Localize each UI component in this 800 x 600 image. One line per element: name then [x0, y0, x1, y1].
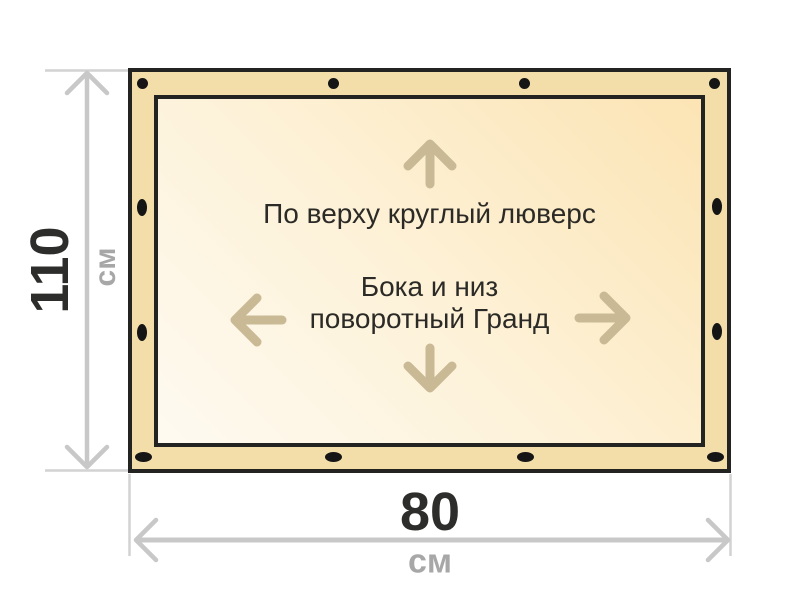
- sides-bottom-note: Бока и низ поворотный Гранд: [154, 271, 705, 335]
- sides-bottom-note-line2: поворотный Гранд: [154, 303, 705, 335]
- grommet-oval-icon: [517, 452, 534, 462]
- grommet-round-icon: [709, 78, 720, 89]
- grommet-oval-icon: [707, 452, 724, 462]
- grommet-round-icon: [328, 78, 339, 89]
- sides-bottom-note-line1: Бока и низ: [154, 271, 705, 303]
- height-dimension-unit: см: [89, 248, 123, 287]
- banner-scheme-diagram: По верху круглый люверс Бока и низ повор…: [0, 0, 800, 600]
- grommet-round-icon: [137, 78, 148, 89]
- arrowhead-up-icon: [67, 73, 107, 93]
- top-edge-note: По верху круглый люверс: [154, 198, 705, 230]
- width-dimension-value: 80: [400, 481, 460, 543]
- width-dimension-unit: см: [408, 543, 452, 582]
- grommet-oval-icon: [135, 452, 152, 462]
- arrowhead-left-icon: [136, 520, 156, 560]
- grommet-oval-icon: [712, 323, 722, 340]
- arrowhead-down-icon: [67, 447, 107, 467]
- grommet-oval-icon: [137, 199, 147, 216]
- grommet-oval-icon: [712, 198, 722, 215]
- height-dimension-value: 110: [19, 226, 81, 313]
- grommet-round-icon: [519, 78, 530, 89]
- grommet-oval-icon: [325, 452, 342, 462]
- grommet-oval-icon: [137, 324, 147, 341]
- arrowhead-right-icon: [708, 520, 728, 560]
